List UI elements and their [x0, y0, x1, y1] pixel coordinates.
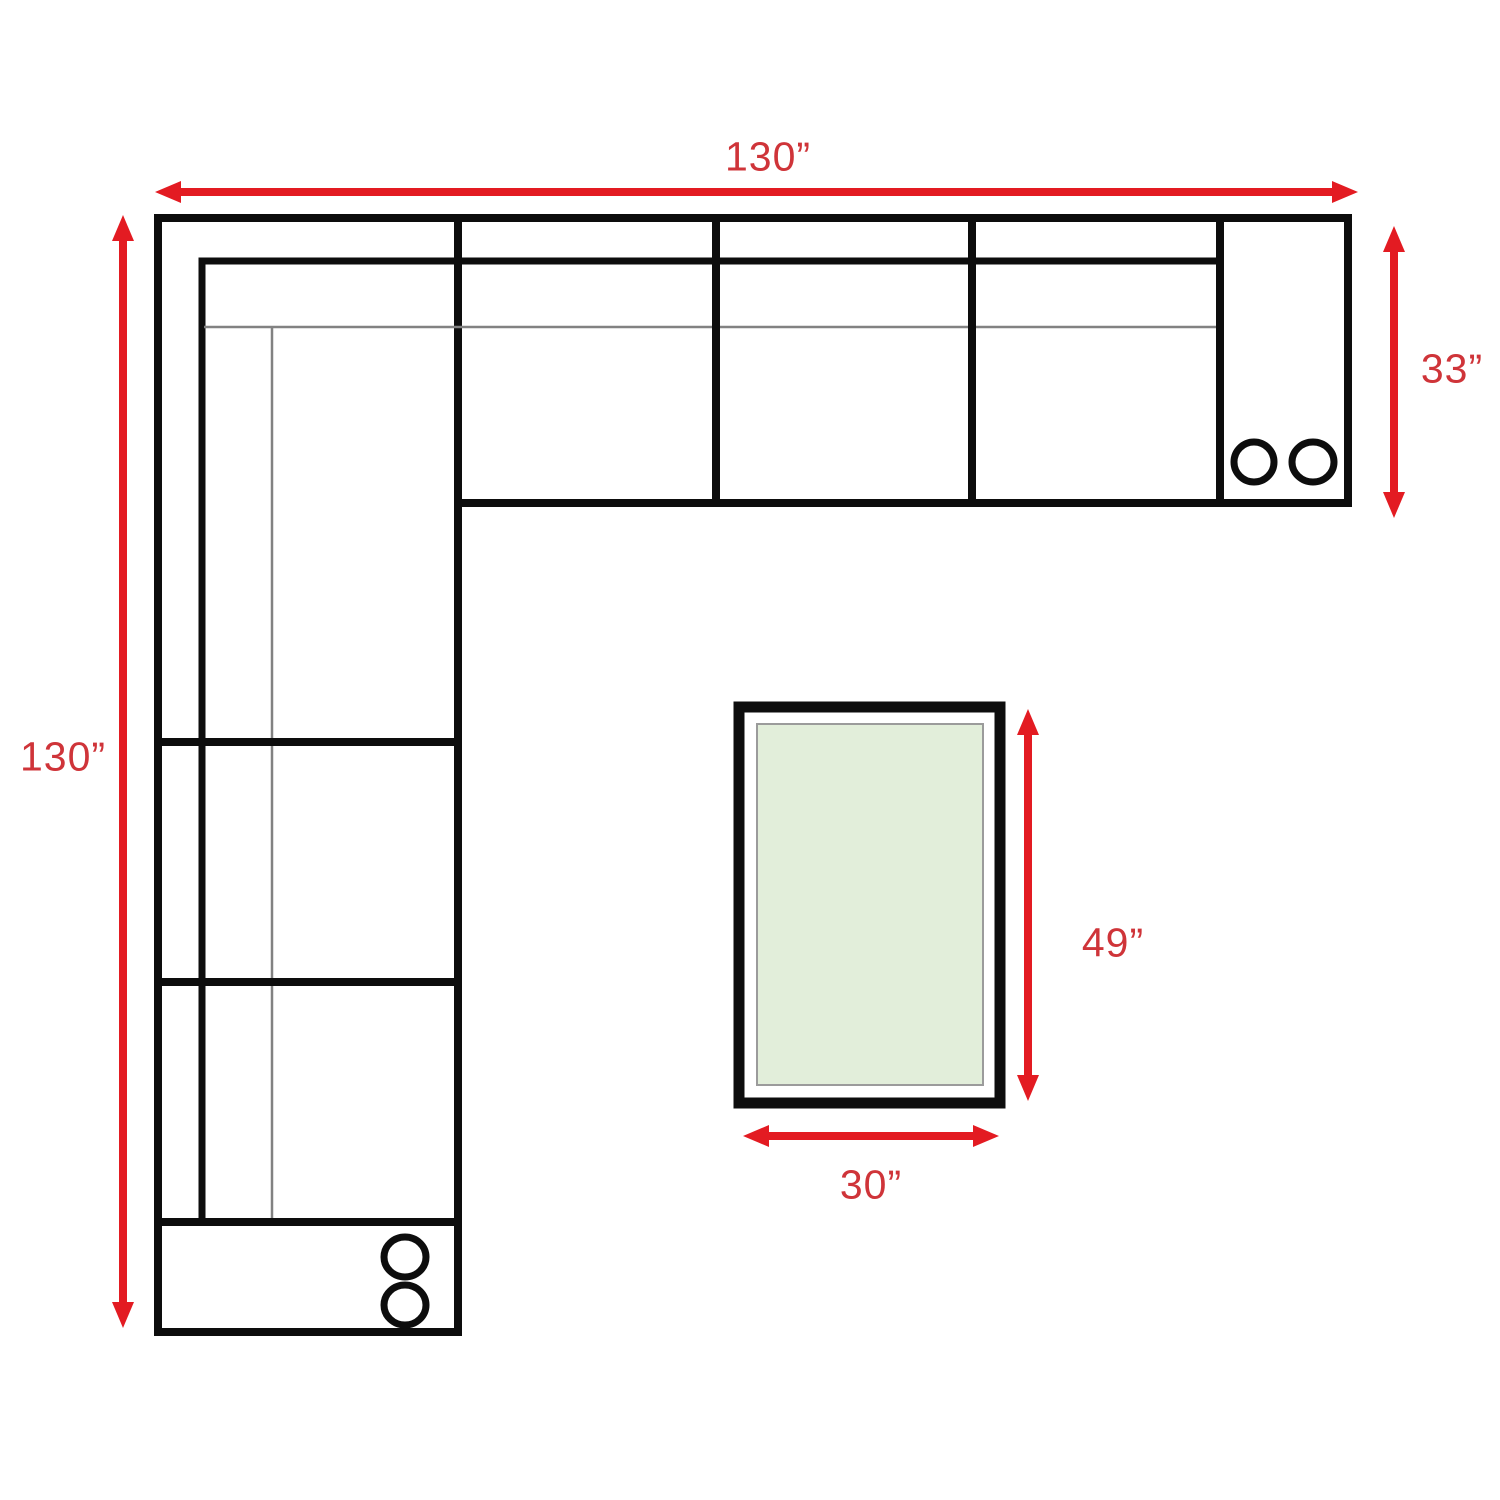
cupholder-icon	[1234, 442, 1274, 482]
table-top-surface	[757, 724, 983, 1085]
ottoman-table	[739, 707, 1000, 1103]
dimension-arrow-sofa-width	[155, 181, 1358, 203]
dimension-arrow-table-length	[1017, 709, 1039, 1101]
cupholder-icon	[384, 1237, 426, 1277]
cupholder-icon	[1292, 442, 1334, 482]
sofa-height-label: 130”	[20, 737, 106, 778]
cupholder-icon	[384, 1285, 426, 1325]
floor-plan-canvas: 130” 130” 33” 49” 30”	[0, 0, 1500, 1500]
dimension-arrow-sofa-depth	[1383, 226, 1405, 518]
dimension-arrow-table-width	[743, 1125, 999, 1147]
sofa-width-label: 130”	[725, 137, 811, 178]
sofa-depth-label: 33”	[1421, 349, 1483, 390]
table-width-label: 30”	[840, 1165, 902, 1206]
table-length-label: 49”	[1082, 923, 1144, 964]
dimension-arrow-sofa-height	[112, 215, 134, 1328]
sectional-sofa-diagram	[0, 0, 1500, 1500]
